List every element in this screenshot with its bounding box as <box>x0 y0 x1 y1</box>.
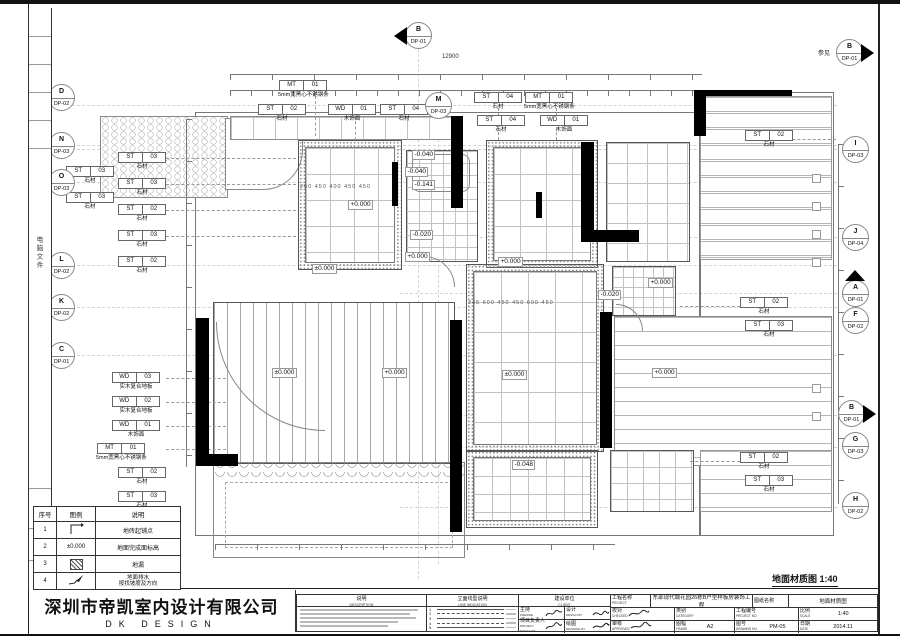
wall <box>392 162 398 206</box>
legend-header-desc: 说明 <box>96 507 181 522</box>
level-label: +0.000 <box>382 368 407 378</box>
material-tag: ST04石材 <box>477 115 525 134</box>
dimension-line-left <box>186 119 192 467</box>
level-label: -0.048 <box>512 460 535 470</box>
dimension-line-bottom <box>215 544 615 550</box>
legend-row-desc: 地砖起铺点 <box>96 522 181 539</box>
material-tag: ST02石材 <box>258 104 306 123</box>
binding-strip: 电脑文件 <box>28 8 52 590</box>
wall <box>536 192 542 218</box>
legend-row-desc: 地面完成面标高 <box>96 539 181 556</box>
company-logo: DK DESIGN <box>28 619 295 629</box>
signature <box>628 609 650 618</box>
elevation-marker: GDP-03 <box>842 432 869 459</box>
legend-row-no: 1 <box>34 522 57 539</box>
level-label: -0.040 <box>405 167 428 177</box>
ref-square <box>812 412 821 421</box>
elevation-marker: CDP-01 <box>48 342 75 369</box>
legend-header-symbol: 图例 <box>57 507 96 522</box>
tile-dims-kitchen: 250 450 400 450 450 <box>300 184 371 190</box>
slope-arrow-icon <box>57 573 96 590</box>
tile-dims-dining: 345 600 450 450 600 450 <box>468 300 554 306</box>
room-bottom-right <box>610 450 694 512</box>
signature <box>545 622 563 631</box>
marker-arrow-left-icon <box>394 27 407 45</box>
material-tag: ST02石材 <box>740 452 788 471</box>
company-block: 深圳市帝凯室内设计有限公司 DK DESIGN <box>28 590 296 632</box>
description-line <box>300 617 416 619</box>
leader-line <box>315 96 316 136</box>
legend-row-no: 2 <box>34 539 57 556</box>
elevation-marker: IDP-03 <box>842 136 869 163</box>
titleblock-info: 工程名称PROJECT 东部现代城花园26栋B户型样板房装饰工程 图纸名称 地面… <box>611 595 877 631</box>
elevation-marker: BDP-01 <box>405 22 432 49</box>
material-tag: WD01木饰面 <box>328 104 376 123</box>
signature <box>592 622 610 631</box>
elevation-marker: LDP-02 <box>48 252 75 279</box>
level-label: +0.000 <box>348 200 373 210</box>
material-tag: ST02石材 <box>118 204 166 223</box>
elevation-marker: BDP-01 <box>836 39 863 66</box>
drawing-title: 地面材质图 1:40 <box>772 572 838 587</box>
date-value: 2014.11 <box>810 624 876 630</box>
material-tag: WD01木饰面 <box>540 115 588 134</box>
material-tag: ST03石材 <box>118 230 166 249</box>
level-label: -0.020 <box>410 230 433 240</box>
material-tag: WD01木饰面 <box>112 420 160 439</box>
wall <box>600 312 612 448</box>
ref-square <box>812 384 821 393</box>
level-label: ±0.000 <box>272 368 297 378</box>
company-name: 深圳市帝凯室内设计有限公司 <box>28 593 295 618</box>
ref-square <box>812 174 821 183</box>
material-tag: ST04石材 <box>380 104 428 123</box>
dimension-total: 12900 <box>440 54 461 60</box>
elevation-marker: ADP-01 <box>842 280 869 307</box>
tile-start-icon <box>57 522 96 539</box>
balcony-scallop <box>214 463 464 478</box>
leader-line <box>690 461 740 462</box>
frame-value: A2 <box>687 624 733 630</box>
title-block: 说明DESCRIPTION 立面线型说明LINE INDICATION 1 2 … <box>296 594 878 632</box>
room-right-top <box>606 142 690 262</box>
material-tag: ST03石材 <box>745 475 793 494</box>
legend-row-no: 3 <box>34 556 57 573</box>
spine-text: 电脑文件 <box>33 236 43 270</box>
marker-arrow-up-icon <box>845 270 865 281</box>
see-note: 参见 <box>818 48 830 57</box>
scale-value: 1:40 <box>810 611 876 617</box>
elevation-marker: DDP-02 <box>48 84 75 111</box>
ref-square <box>812 258 821 267</box>
material-tag: ST03石材 <box>745 320 793 339</box>
description-line <box>300 625 388 627</box>
level-label: ±0.000 <box>502 370 527 380</box>
signature <box>630 622 652 631</box>
drain-hatch-icon <box>57 556 96 573</box>
leader-line <box>166 236 296 237</box>
level-label: -0.020 <box>598 290 621 300</box>
material-tag: WD02实木复合地板 <box>112 396 160 415</box>
legend-row-no: 4 <box>34 573 57 590</box>
material-tag: ST04石材 <box>474 92 522 111</box>
material-tag: ST02石材 <box>745 130 793 149</box>
material-tag: MT015mm宽黑心不锈钢条 <box>524 92 575 111</box>
legend-header-no: 序号 <box>34 507 57 522</box>
level-label: +0.000 <box>648 278 673 288</box>
level-label: +0.000 <box>652 368 677 378</box>
wall <box>196 318 209 456</box>
level-label: +0.000 <box>405 252 430 262</box>
material-tag: ST03石材 <box>118 152 166 171</box>
legend-row-desc: 地面排水按找坡度及方向 <box>96 573 181 590</box>
material-tag: ST03石材 <box>118 178 166 197</box>
signature <box>545 609 563 618</box>
titleblock-line-indication: 立面线型说明LINE INDICATION 1 2 3 4 5 <box>427 595 519 631</box>
marker-arrow-right-icon <box>861 44 874 62</box>
level-label: -0.040 <box>412 150 435 160</box>
material-tag: ST02石材 <box>118 467 166 486</box>
signature <box>592 609 610 618</box>
drawing-sheet: 电脑文件 12900 <box>0 0 900 636</box>
elevation-marker: FDP-02 <box>842 307 869 334</box>
level-label: -0.141 <box>412 180 435 190</box>
wall <box>694 90 706 136</box>
leader-line <box>166 210 296 211</box>
leader-line <box>166 158 296 159</box>
description-line <box>300 613 410 615</box>
wall <box>451 116 463 208</box>
leader-line <box>166 184 296 185</box>
material-tag: WD03实木复合地板 <box>112 372 160 391</box>
wall <box>581 230 639 242</box>
level-label: +0.000 <box>498 257 523 267</box>
titleblock-description: 说明DESCRIPTION <box>297 595 427 631</box>
drawing-number: PM-05 <box>758 624 797 630</box>
ref-square <box>812 230 821 239</box>
ref-square <box>812 202 821 211</box>
leader-line <box>680 306 740 307</box>
description-line <box>300 609 418 611</box>
legend-table: 序号 图例 说明 1 地砖起铺点 2 ±0.000 地面完成面标高 3 地漏 4… <box>33 506 181 590</box>
elevation-marker: JDP-04 <box>842 224 869 251</box>
description-line <box>300 621 398 623</box>
room-dining <box>466 264 604 452</box>
level-symbol: ±0.000 <box>57 539 96 556</box>
wall <box>581 142 594 235</box>
marker-arrow-right-icon <box>863 405 876 423</box>
elevation-marker: MDP-03 <box>425 92 452 119</box>
wall <box>700 90 792 96</box>
elevation-marker: BDP-01 <box>838 400 865 427</box>
project-name: 东部现代城花园26栋B户型样板房装饰工程 <box>652 593 751 609</box>
wall <box>450 444 462 532</box>
material-tag: MT015mm宽黑心不锈钢条 <box>278 80 329 99</box>
sheet-name: 地面材质图 <box>790 597 876 605</box>
room-bedroom-right <box>614 316 832 466</box>
material-tag: ST02石材 <box>118 256 166 275</box>
elevation-marker: NDP-03 <box>48 132 75 159</box>
material-tag: MT015mm宽黑心不锈钢条 <box>96 443 147 462</box>
elevation-marker: ODP-03 <box>48 169 75 196</box>
titleblock-signatures: 建设单位CLIENT 主持PRESIDE 设计DESIGN BY 项目负责人PR… <box>519 595 611 631</box>
legend-row-desc: 地漏 <box>96 556 181 573</box>
material-tag: ST02石材 <box>740 297 788 316</box>
level-label: ±0.000 <box>312 264 337 274</box>
balcony-dashed <box>225 482 453 548</box>
wall <box>450 320 462 452</box>
wall <box>196 454 238 466</box>
elevation-marker: HDP-02 <box>842 492 869 519</box>
elevation-marker: KDP-02 <box>48 294 75 321</box>
